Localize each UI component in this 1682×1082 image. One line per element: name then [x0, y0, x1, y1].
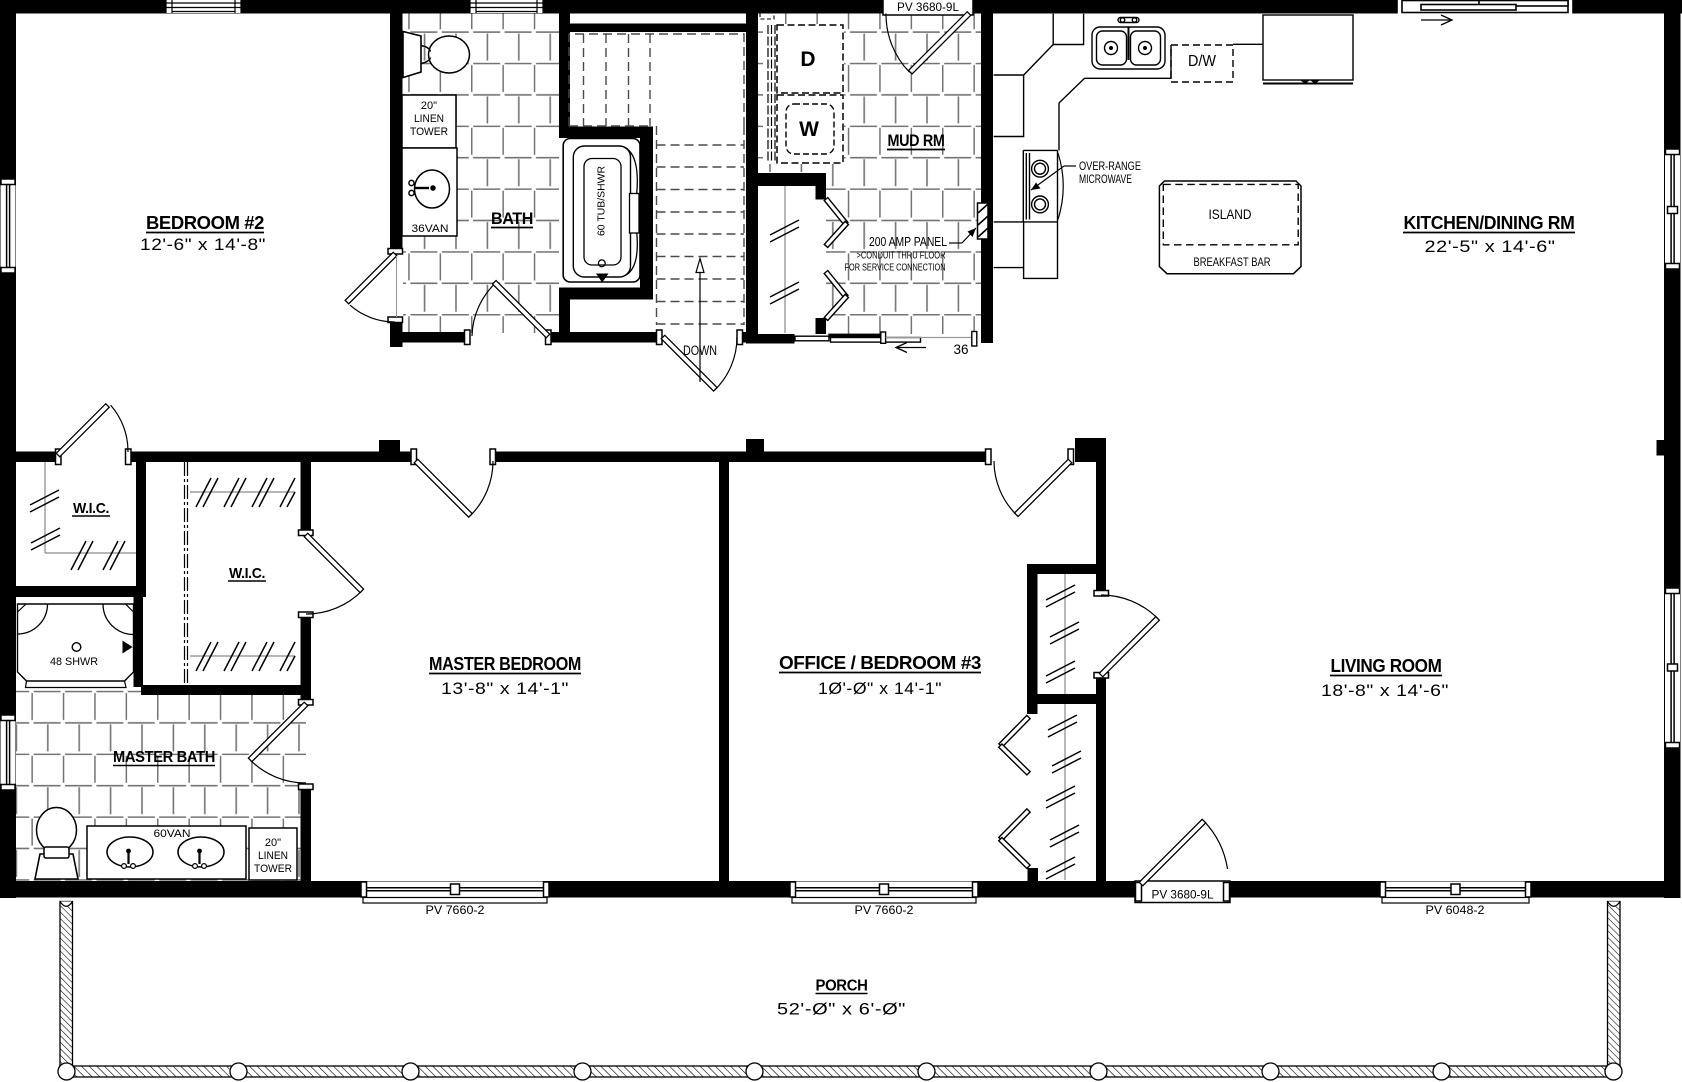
svg-text:60 TUB/SHWR: 60 TUB/SHWR — [596, 166, 608, 236]
svg-text:PV 7660-2: PV 7660-2 — [855, 905, 914, 917]
svg-text:MASTER BATH: MASTER BATH — [113, 749, 215, 766]
svg-text:PV 6048-2: PV 6048-2 — [1426, 905, 1485, 917]
svg-text:MASTER BEDROOM: MASTER BEDROOM — [429, 654, 581, 674]
svg-text:D: D — [800, 48, 815, 71]
svg-text:36VAN: 36VAN — [412, 223, 449, 235]
svg-text:BREAKFAST BAR: BREAKFAST BAR — [1194, 255, 1271, 269]
svg-text:20": 20" — [421, 100, 437, 112]
svg-text:1Ø'-Ø" x 14'-1": 1Ø'-Ø" x 14'-1" — [818, 679, 942, 698]
svg-text:W.I.C.: W.I.C. — [73, 500, 109, 517]
svg-text:36: 36 — [953, 342, 968, 357]
svg-text:KITCHEN/DINING RM: KITCHEN/DINING RM — [1404, 213, 1575, 233]
svg-text:DOWN: DOWN — [683, 343, 717, 358]
svg-text:LINEN: LINEN — [414, 113, 444, 125]
svg-text:LINEN: LINEN — [258, 850, 288, 862]
svg-text:LIVING ROOM: LIVING ROOM — [1331, 656, 1442, 676]
svg-text:52'-Ø" x 6'-Ø": 52'-Ø" x 6'-Ø" — [777, 1000, 906, 1019]
svg-text:13'-8" x 14'-1": 13'-8" x 14'-1" — [441, 679, 569, 698]
svg-text:60VAN: 60VAN — [154, 828, 191, 840]
svg-text:OVER-RANGE: OVER-RANGE — [1079, 161, 1141, 173]
svg-text:BATH: BATH — [491, 210, 533, 228]
svg-text:OFFICE / BEDROOM #3: OFFICE / BEDROOM #3 — [779, 653, 981, 673]
svg-text:PV 7660-2: PV 7660-2 — [426, 905, 485, 917]
svg-text:W.I.C.: W.I.C. — [229, 565, 265, 582]
svg-text:TOWER: TOWER — [410, 126, 448, 138]
svg-text:ISLAND: ISLAND — [1209, 206, 1252, 222]
svg-text:PV 3680-9L: PV 3680-9L — [897, 2, 960, 14]
svg-text:20": 20" — [265, 837, 281, 849]
svg-text:12'-6" x 14'-8": 12'-6" x 14'-8" — [140, 235, 266, 254]
svg-text:FOR SERVICE CONNECTION: FOR SERVICE CONNECTION — [845, 262, 946, 274]
svg-text:TOWER: TOWER — [254, 863, 292, 875]
svg-text:22'-5" x 14'-6": 22'-5" x 14'-6" — [1425, 237, 1556, 256]
svg-text:18'-8" x 14'-6": 18'-8" x 14'-6" — [1321, 681, 1449, 700]
svg-text:200 AMP PANEL: 200 AMP PANEL — [869, 235, 947, 249]
svg-text:PV 3680-9L: PV 3680-9L — [1152, 890, 1215, 902]
svg-text:MICROWAVE: MICROWAVE — [1079, 174, 1132, 186]
svg-text:MUD RM: MUD RM — [888, 132, 945, 150]
svg-text:BEDROOM #2: BEDROOM #2 — [146, 213, 264, 233]
svg-text:>CONDUIT THRU FLOOR: >CONDUIT THRU FLOOR — [857, 250, 946, 262]
svg-text:48 SHWR: 48 SHWR — [50, 656, 98, 668]
svg-text:W: W — [799, 118, 819, 141]
svg-text:D/W: D/W — [1188, 53, 1216, 70]
svg-text:PORCH: PORCH — [816, 978, 868, 995]
